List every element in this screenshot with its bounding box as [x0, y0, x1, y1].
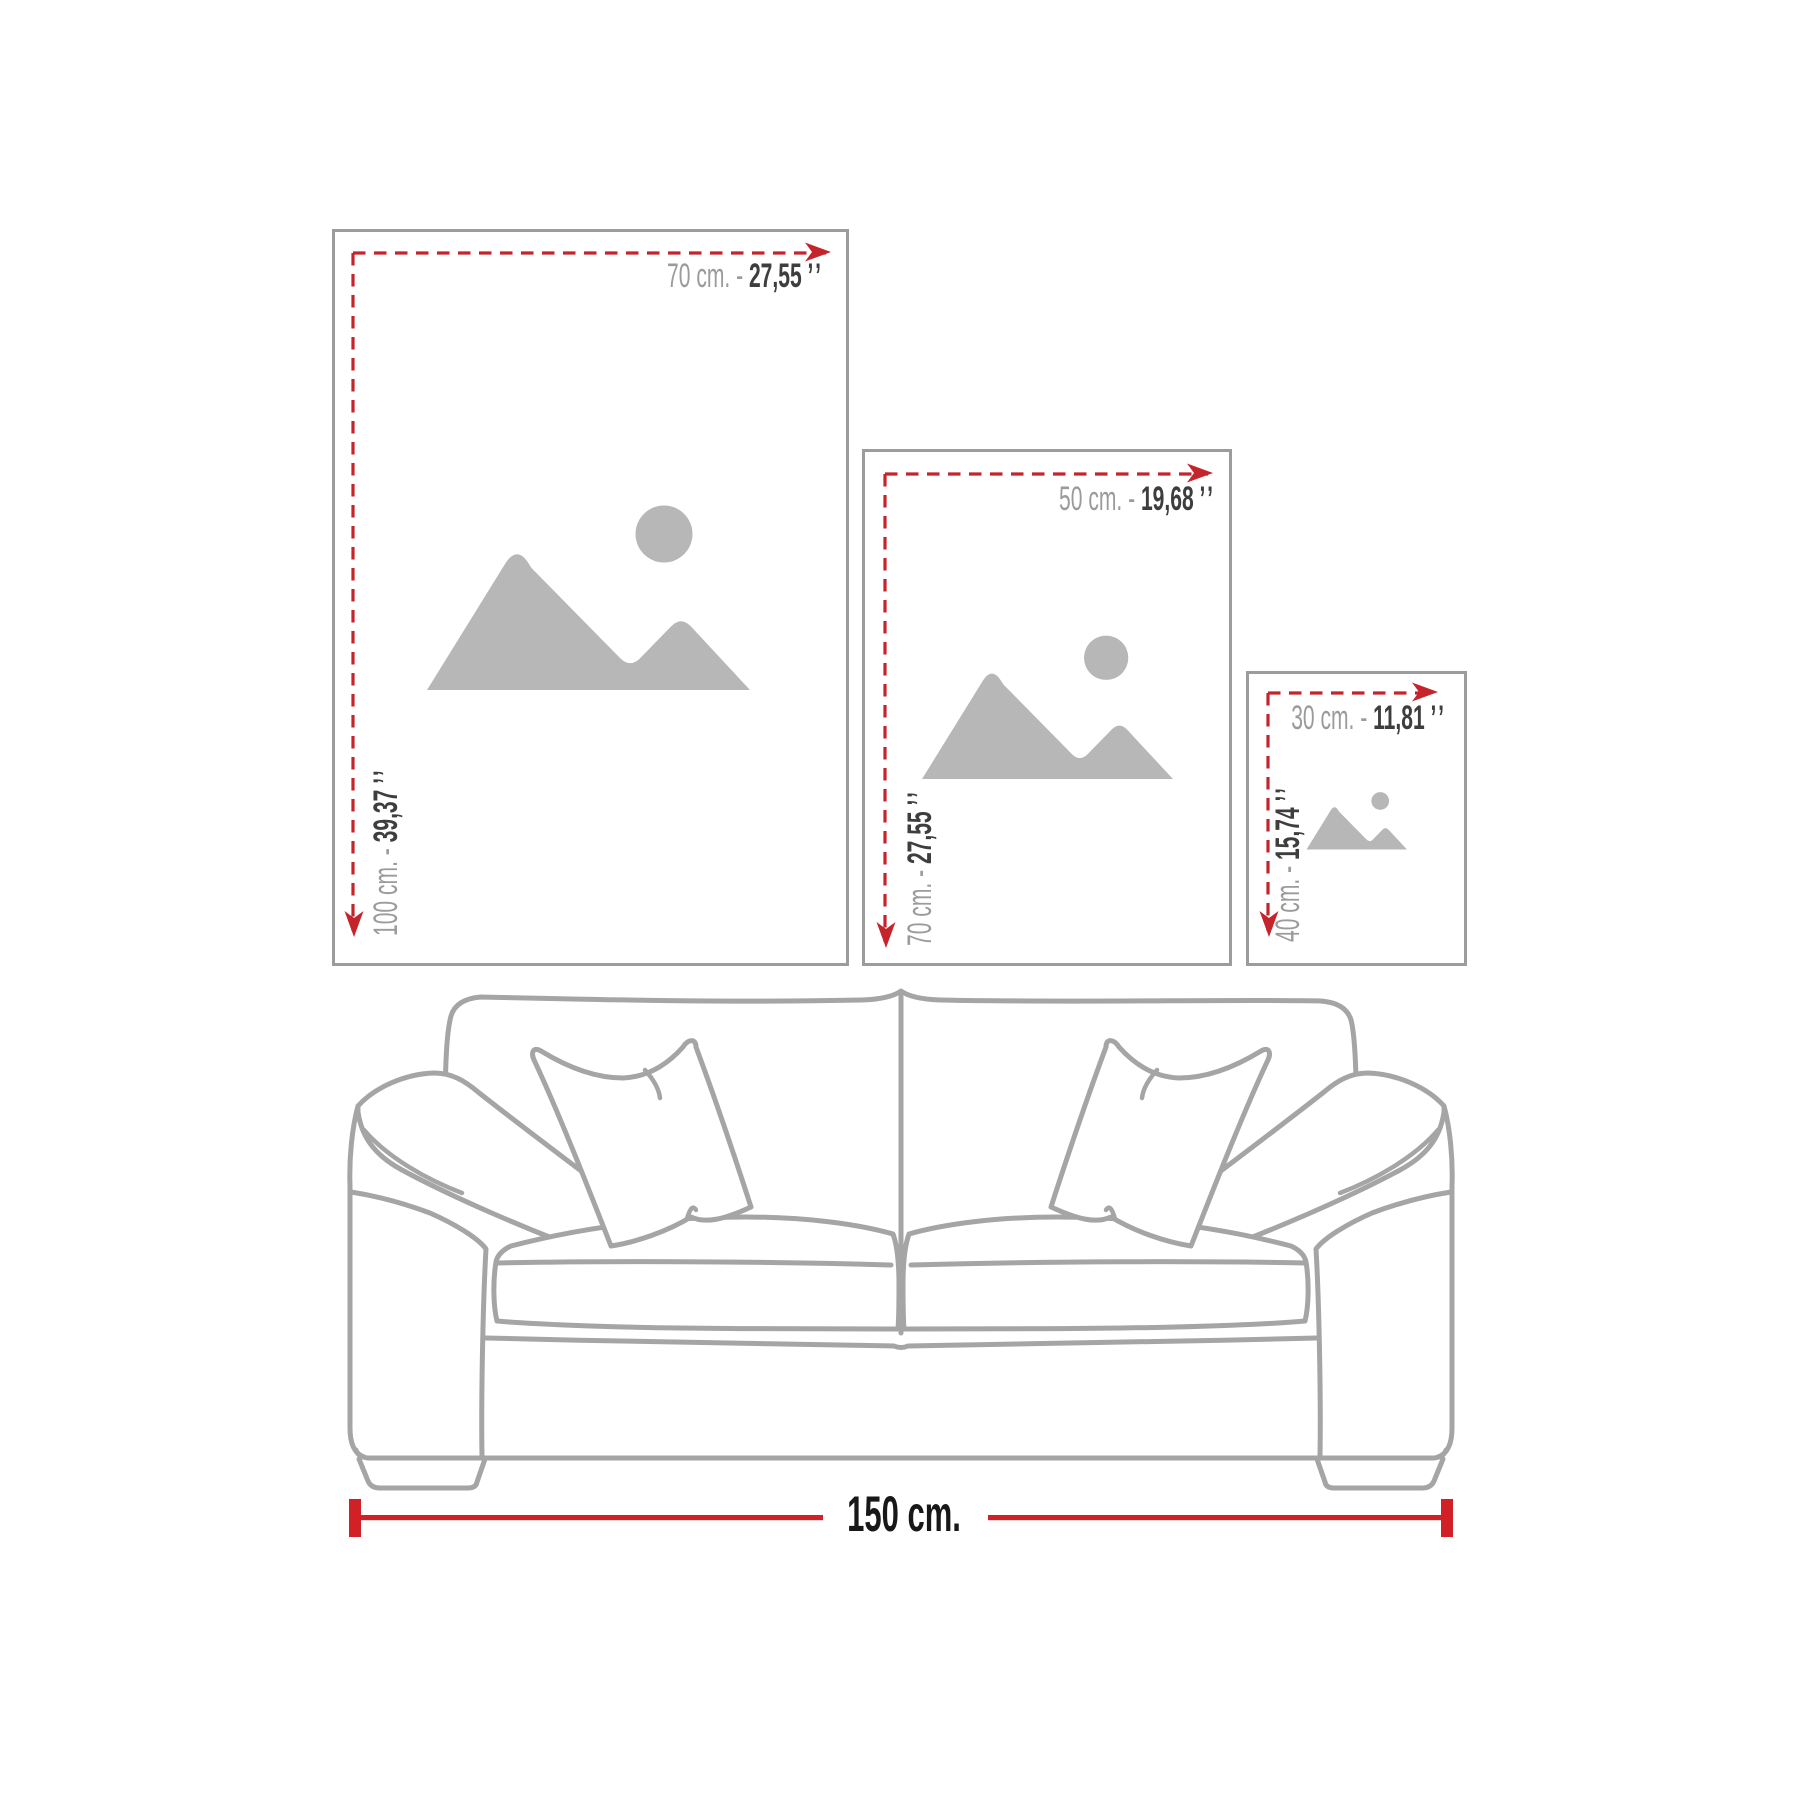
- svg-text:70 cm. - 27,55 ’ ’: 70 cm. - 27,55 ’ ’: [900, 792, 938, 946]
- svg-text:100 cm. - 39,37 ’ ’: 100 cm. - 39,37 ’ ’: [366, 770, 404, 936]
- svg-text:50 cm. - 19,68 ’ ’: 50 cm. - 19,68 ’ ’: [1059, 479, 1213, 517]
- svg-text:40 cm. - 15,74 ’ ’: 40 cm. - 15,74 ’ ’: [1268, 788, 1306, 942]
- svg-text:150 cm.: 150 cm.: [847, 1485, 961, 1541]
- svg-text:70 cm. - 27,55 ’ ’: 70 cm. - 27,55 ’ ’: [667, 256, 821, 294]
- svg-text:30 cm. - 11,81 ’ ’: 30 cm. - 11,81 ’ ’: [1291, 698, 1444, 736]
